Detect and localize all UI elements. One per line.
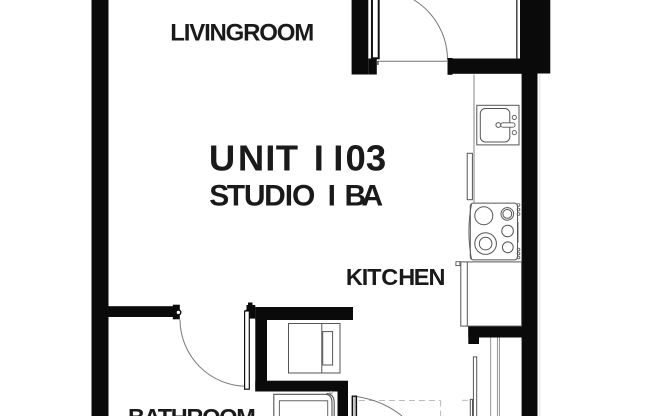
svg-text:KITCHEN: KITCHEN bbox=[346, 264, 446, 290]
svg-text:STUDIOIBA: STUDIOIBA bbox=[209, 180, 383, 213]
svg-text:BATHROOM: BATHROOM bbox=[128, 404, 255, 416]
svg-text:UNITII03: UNITII03 bbox=[209, 137, 386, 178]
svg-text:LIVINGROOM: LIVINGROOM bbox=[170, 20, 313, 47]
